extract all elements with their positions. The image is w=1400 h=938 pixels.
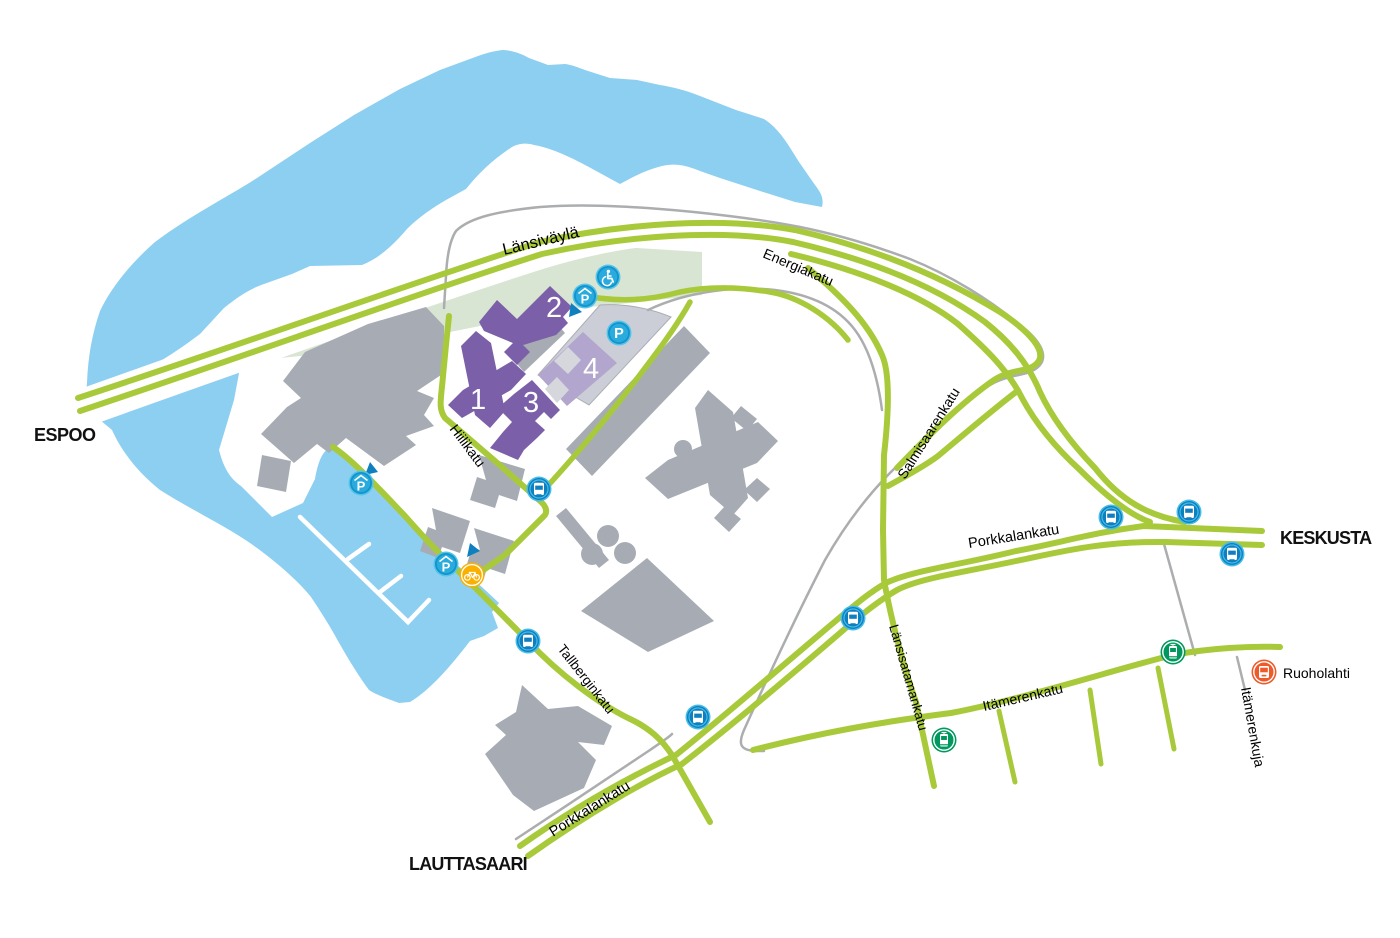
svg-text:Ruoholahti: Ruoholahti xyxy=(1283,665,1350,681)
svg-text:4: 4 xyxy=(583,353,599,385)
svg-text:ESPOO: ESPOO xyxy=(34,425,96,445)
svg-text:1: 1 xyxy=(470,384,486,416)
svg-text:2: 2 xyxy=(546,292,562,324)
svg-text:3: 3 xyxy=(523,387,539,419)
svg-text:KESKUSTA: KESKUSTA xyxy=(1280,528,1372,548)
svg-text:LAUTTASAARI: LAUTTASAARI xyxy=(409,854,527,874)
